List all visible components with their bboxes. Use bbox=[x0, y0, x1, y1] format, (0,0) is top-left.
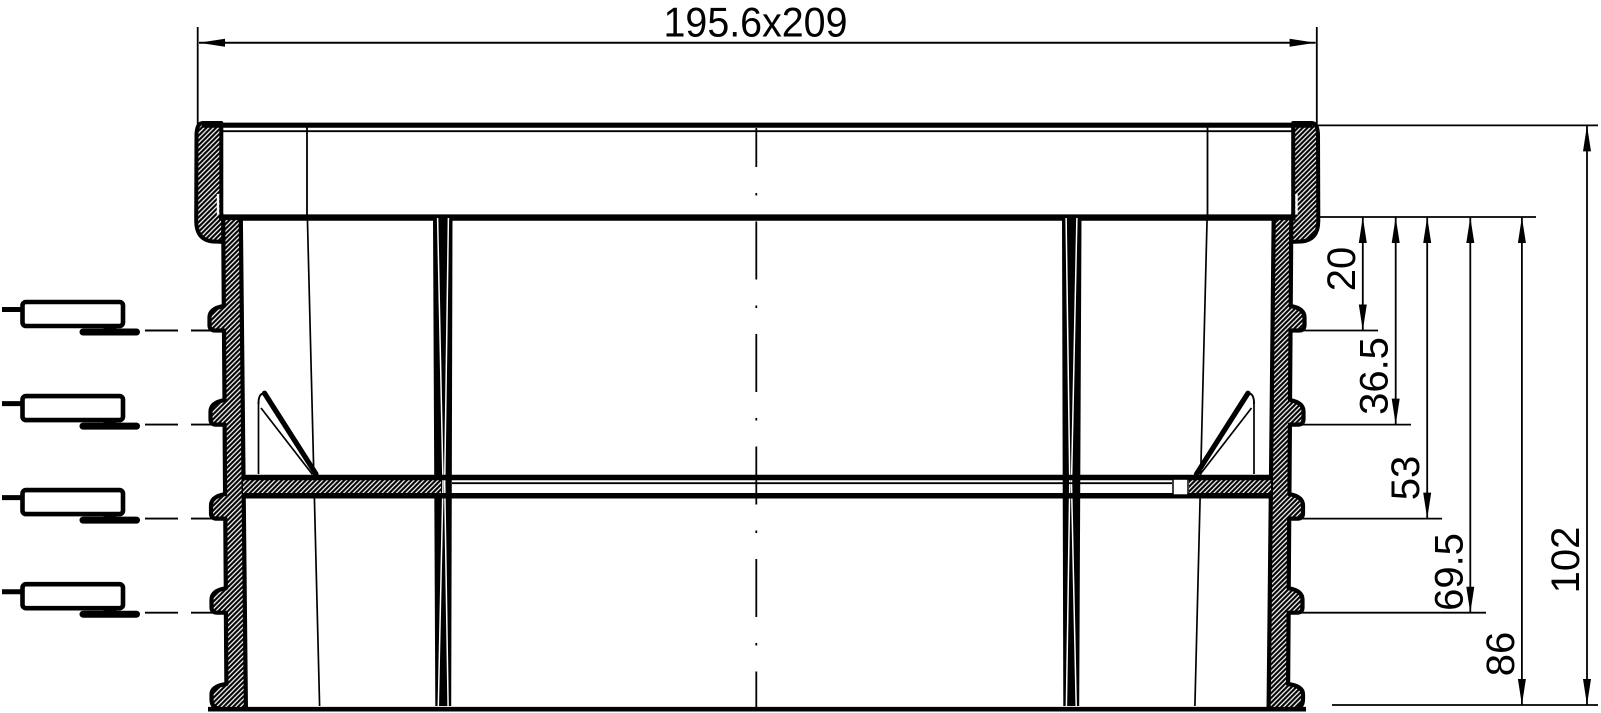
svg-text:53: 53 bbox=[1384, 456, 1428, 501]
svg-text:102: 102 bbox=[1544, 527, 1588, 594]
svg-text:69.5: 69.5 bbox=[1427, 533, 1471, 611]
svg-text:195.6x209: 195.6x209 bbox=[664, 0, 848, 46]
svg-text:36.5: 36.5 bbox=[1353, 337, 1397, 415]
svg-text:20: 20 bbox=[1320, 247, 1364, 292]
svg-text:86: 86 bbox=[1479, 632, 1523, 677]
